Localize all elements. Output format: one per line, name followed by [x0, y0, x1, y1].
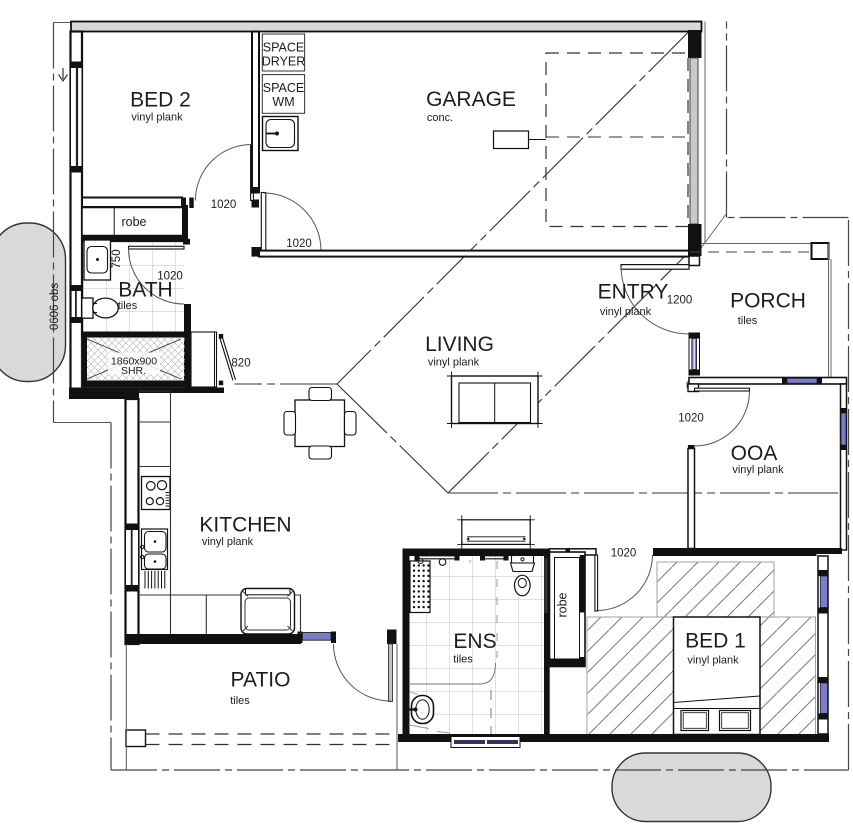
svg-text:1020: 1020	[211, 199, 237, 211]
svg-text:vinyl plank: vinyl plank	[428, 357, 480, 369]
svg-text:0606 obs: 0606 obs	[49, 283, 61, 331]
svg-text:PATIO: PATIO	[231, 669, 291, 692]
svg-text:GARAGE: GARAGE	[426, 88, 516, 111]
svg-text:conc.: conc.	[427, 112, 453, 124]
svg-text:SPACE: SPACE	[263, 41, 304, 55]
svg-text:robe: robe	[556, 592, 570, 617]
svg-text:1020: 1020	[157, 271, 183, 283]
svg-text:tiles: tiles	[453, 654, 473, 666]
svg-text:LIVING: LIVING	[425, 333, 494, 356]
svg-text:1200: 1200	[667, 295, 693, 307]
svg-text:BED 1: BED 1	[685, 630, 746, 653]
svg-text:750: 750	[111, 249, 123, 268]
svg-text:SHR.: SHR.	[121, 365, 146, 377]
svg-text:vinyl plank: vinyl plank	[131, 112, 183, 124]
svg-text:DRYER: DRYER	[262, 55, 306, 69]
svg-text:tiles: tiles	[738, 315, 758, 327]
svg-text:820: 820	[231, 358, 250, 370]
svg-text:vinyl plank: vinyl plank	[600, 306, 652, 318]
svg-text:1020: 1020	[286, 238, 312, 250]
svg-text:ENTRY: ENTRY	[598, 281, 669, 304]
svg-text:tiles: tiles	[118, 300, 138, 312]
svg-text:WM: WM	[272, 95, 294, 109]
svg-text:tiles: tiles	[230, 695, 250, 707]
svg-text:PORCH: PORCH	[730, 290, 806, 313]
svg-text:vinyl plank: vinyl plank	[202, 536, 254, 548]
svg-text:OOA: OOA	[731, 442, 778, 465]
svg-text:vinyl plank: vinyl plank	[687, 655, 739, 667]
svg-text:vinyl plank: vinyl plank	[732, 464, 784, 476]
svg-text:1020: 1020	[611, 548, 637, 560]
svg-text:ENS: ENS	[453, 630, 496, 653]
svg-text:1020: 1020	[678, 413, 704, 425]
svg-text:BED 2: BED 2	[130, 89, 191, 112]
svg-text:KITCHEN: KITCHEN	[199, 514, 291, 537]
svg-text:robe: robe	[121, 215, 146, 229]
svg-text:SPACE: SPACE	[263, 81, 304, 95]
